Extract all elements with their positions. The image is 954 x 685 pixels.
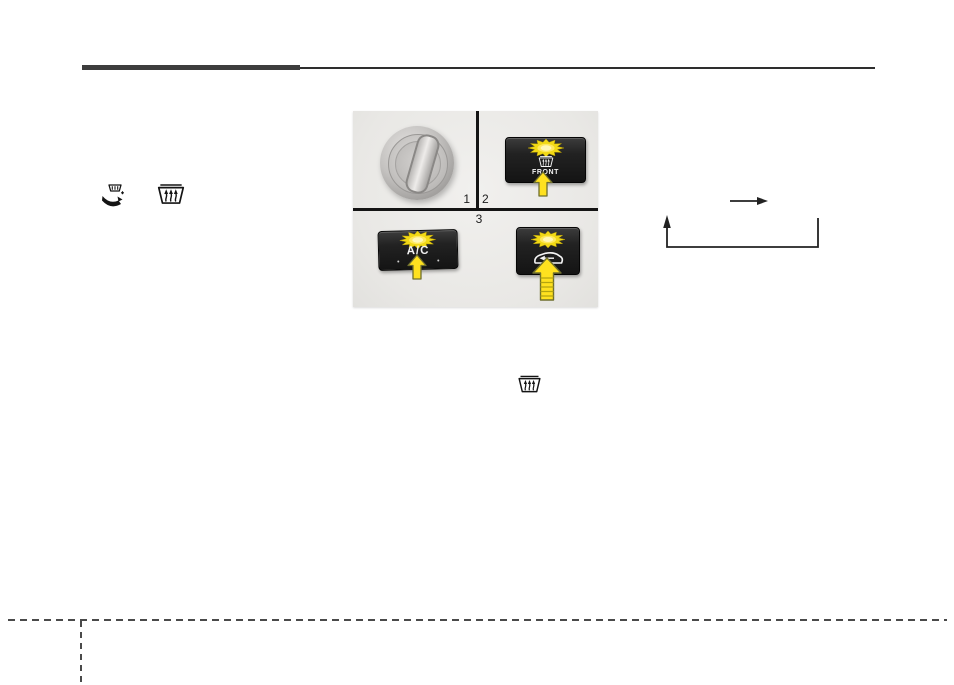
figure-divider-vertical bbox=[476, 111, 479, 209]
footer-dashed-vertical bbox=[80, 621, 82, 685]
button-dot bbox=[437, 259, 439, 261]
section-header-bar bbox=[82, 65, 300, 70]
callout-3: 3 bbox=[467, 213, 491, 225]
figure-divider-horizontal bbox=[353, 208, 598, 211]
front-windshield-defrost-icon bbox=[535, 155, 556, 168]
mode-selection-knob[interactable] bbox=[380, 126, 454, 200]
callout-2: 2 bbox=[482, 193, 502, 205]
header-rule bbox=[300, 67, 875, 69]
front-windshield-defrost-icon bbox=[516, 374, 543, 394]
front-windshield-defrost-icon bbox=[155, 182, 187, 206]
footer-dashed-rule bbox=[8, 619, 947, 621]
callout-1: 1 bbox=[448, 193, 470, 205]
mode-cycle-arrows bbox=[653, 188, 833, 253]
press-arrow bbox=[407, 254, 427, 280]
press-arrow-large bbox=[532, 257, 562, 301]
climate-controls-figure: 1 2 3 FRONT A/C bbox=[353, 111, 598, 307]
indicator-light-glow bbox=[529, 231, 567, 248]
defrost-mode-icon bbox=[101, 183, 127, 207]
button-dot bbox=[397, 260, 399, 262]
press-arrow bbox=[533, 171, 553, 197]
